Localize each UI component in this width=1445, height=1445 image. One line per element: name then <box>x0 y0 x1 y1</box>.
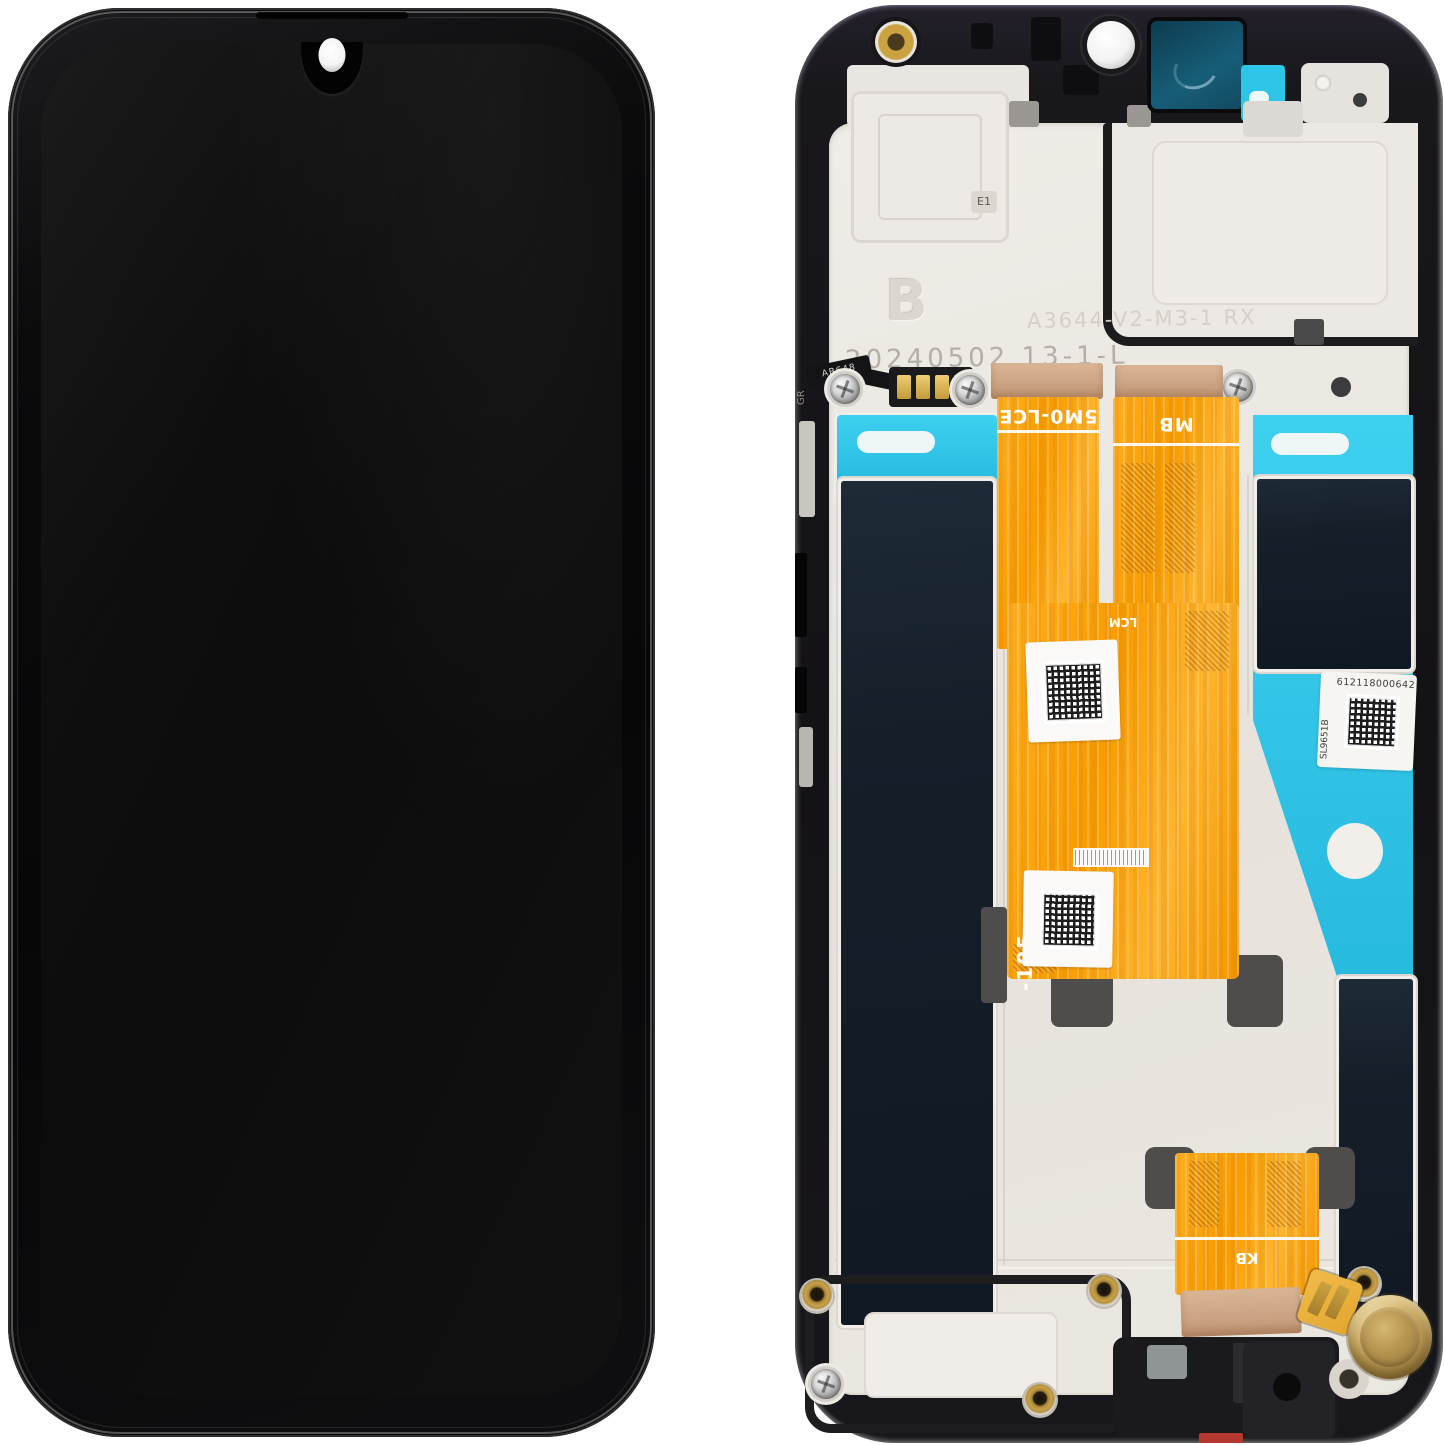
earpiece-slot <box>256 12 408 19</box>
metal-tab <box>1009 101 1039 127</box>
side-metal-piece <box>799 727 813 787</box>
display-screen <box>41 44 622 1396</box>
screw-hole <box>801 1280 833 1312</box>
phone-front-view <box>8 8 655 1437</box>
flex-shield-tab <box>981 907 1007 1003</box>
qr-code <box>1042 660 1106 724</box>
screw <box>955 375 985 405</box>
gold-grounding-contact <box>875 21 917 63</box>
foam-pad <box>1294 319 1324 345</box>
fpc-qr-label <box>1022 870 1114 968</box>
camera-window <box>1147 17 1247 113</box>
adhesive-slot <box>857 431 935 453</box>
micro-text-label <box>1073 848 1149 867</box>
screen-reflection <box>41 44 622 1396</box>
product-photo: B E1 A3644-V2-M3-1 RX 20240502 13-1-L AB… <box>0 0 1445 1445</box>
datamatrix-code <box>1344 694 1400 750</box>
speaker-emboss <box>864 1312 1058 1398</box>
bracket-hole <box>1315 75 1331 91</box>
frame-mark: GR <box>796 381 810 415</box>
plate-hole <box>1331 377 1351 397</box>
bracket-hole <box>1353 93 1367 107</box>
vibration-motor-cap <box>1360 1307 1420 1367</box>
service-barcode-label: 612118000642 SL9651B <box>1317 671 1417 771</box>
speaker-module <box>1243 1341 1335 1439</box>
lcd-panel-back-right-upper <box>1257 479 1411 669</box>
molding-cutout <box>1063 65 1099 95</box>
screw <box>811 1369 841 1399</box>
screw-hole <box>1024 1384 1056 1416</box>
embossed-box-top-left <box>851 91 1009 243</box>
kb-flex-label: KB <box>1175 1249 1319 1267</box>
serial-number: 612118000642 <box>1336 677 1415 691</box>
red-seal <box>1199 1433 1243 1443</box>
screw <box>830 374 860 404</box>
side-button-slot <box>795 667 807 713</box>
vibration-motor <box>1348 1295 1432 1379</box>
kb-flex-cable: KB <box>1175 1153 1319 1295</box>
stamp-batch-letter: B <box>885 269 928 334</box>
embossed-box-inner <box>878 114 982 220</box>
top-right-bracket <box>1301 63 1389 123</box>
stiffener-main-flex <box>991 363 1103 399</box>
stiffener-mb-flex <box>1115 365 1223 399</box>
plate-rib <box>1247 475 1249 715</box>
mb-flex-label: MB <box>1113 413 1239 435</box>
label-model-code: SL9651B <box>1319 685 1334 759</box>
lcm-mark: LCM <box>1007 615 1239 629</box>
adhesive-hole <box>1327 823 1383 879</box>
molding-cutout <box>971 23 993 49</box>
speaker-gasket-outline <box>805 1275 1131 1433</box>
embossed-plate-top-right <box>1152 141 1388 305</box>
adhesive-slot <box>1271 433 1349 455</box>
front-camera-dot <box>318 38 345 72</box>
stamp-part-number: A3644-V2-M3-1 RX <box>1027 305 1257 333</box>
metal-tab <box>1127 105 1151 127</box>
display-assembly-back-view: B E1 A3644-V2-M3-1 RX 20240502 13-1-L AB… <box>795 5 1443 1443</box>
stiffener-kb-flex <box>1180 1287 1302 1337</box>
molding-cutout <box>1031 17 1061 61</box>
lcd-panel-back-left <box>841 481 993 1325</box>
metal-bracket <box>1243 101 1303 137</box>
metal-clip <box>1147 1345 1187 1379</box>
screw-hole <box>1088 1275 1120 1307</box>
side-button-slot <box>795 553 807 637</box>
side-metal-piece <box>799 421 815 517</box>
front-camera-hole <box>1087 21 1135 69</box>
stamp-mold-mark: E1 <box>971 191 997 213</box>
lcm-qr-label <box>1025 639 1120 742</box>
qr-code <box>1039 891 1098 950</box>
main-flex-label: 5M0-LCE <box>997 405 1099 427</box>
